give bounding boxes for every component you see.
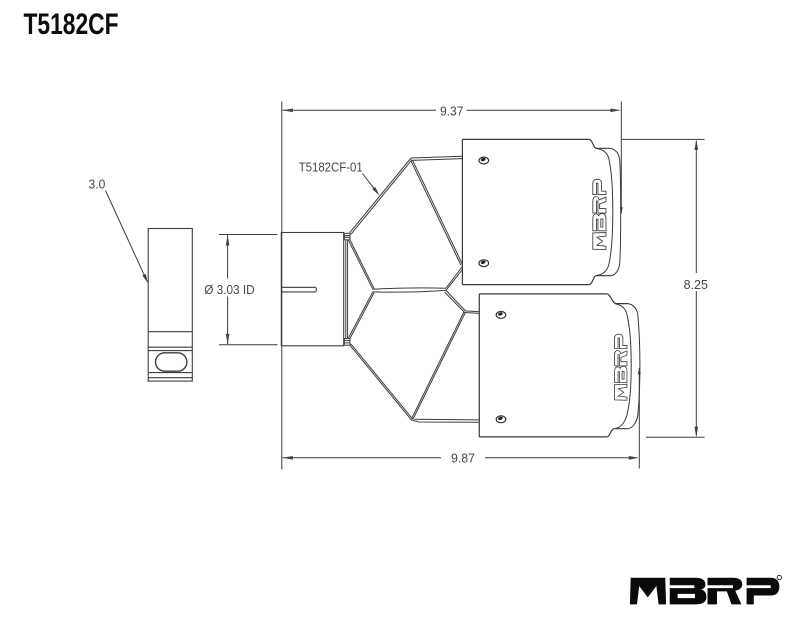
svg-text:3.0: 3.0 — [89, 177, 106, 192]
svg-text:T5182CF-01: T5182CF-01 — [299, 160, 363, 175]
svg-text:Ø 3.03 ID: Ø 3.03 ID — [204, 282, 255, 297]
svg-text:9.87: 9.87 — [451, 451, 475, 466]
svg-text:9.37: 9.37 — [440, 104, 464, 119]
svg-text:T5182CF: T5182CF — [24, 8, 119, 41]
svg-text:8.25: 8.25 — [684, 277, 708, 292]
